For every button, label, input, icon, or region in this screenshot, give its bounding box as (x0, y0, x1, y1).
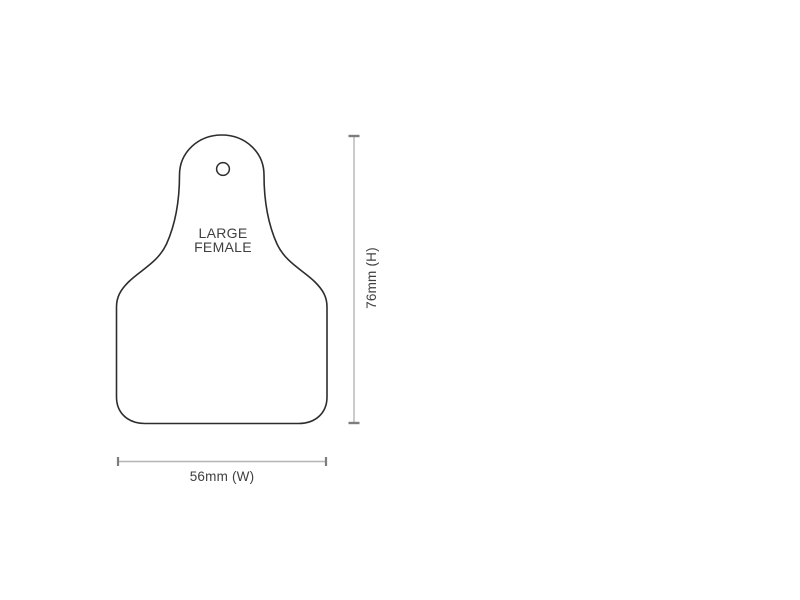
height-dimension-line (349, 136, 360, 423)
width-dimension-label: 56mm (W) (142, 469, 302, 484)
ear-tag-outline (117, 135, 328, 424)
pin-hole-icon (217, 163, 230, 176)
height-dimension-label: 76mm (H) (364, 238, 380, 318)
width-dimension-line (118, 457, 326, 466)
ear-tag-diagram (0, 0, 800, 600)
diagram-canvas: LARGE FEMALE 76mm (H) 56mm (W) (0, 0, 800, 600)
tag-size-label-line2: FEMALE (143, 241, 303, 255)
tag-size-label: LARGE FEMALE (143, 227, 303, 254)
